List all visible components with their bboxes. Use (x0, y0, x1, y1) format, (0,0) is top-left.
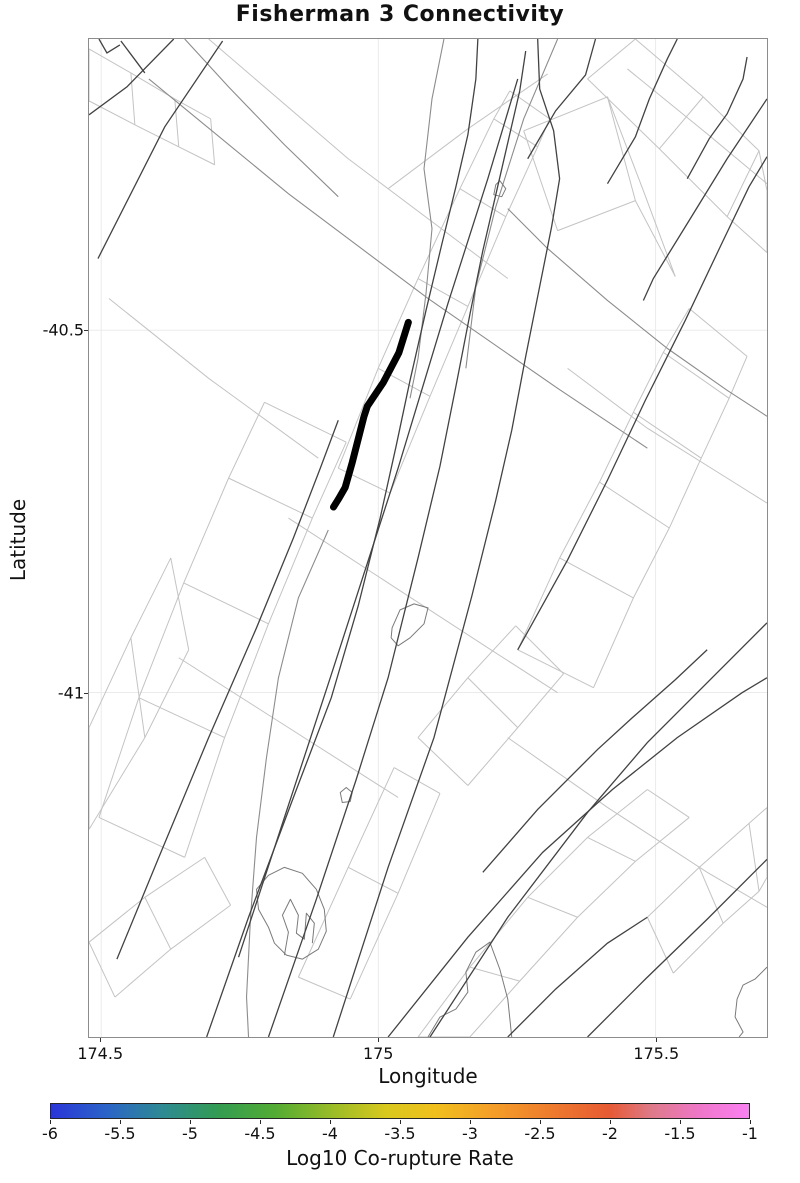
patch-ladder-rung (264, 402, 346, 442)
patch-ladder-rung (470, 967, 520, 981)
patch-ladder-rung (298, 977, 350, 999)
patch-ladder-rung (524, 131, 558, 231)
patch-ladder-rail (418, 626, 516, 738)
fault-trace-dark (98, 41, 223, 259)
x-tick-label: 175.5 (633, 1044, 679, 1063)
coastline (391, 604, 428, 646)
patch-ladder-rung (643, 191, 675, 277)
colorbar-tick-label: -1.5 (664, 1124, 695, 1143)
coastline (282, 899, 314, 955)
fault-trace-medium (149, 79, 648, 448)
patch-ladder-rung (145, 897, 171, 949)
fault-trace-dark (117, 420, 338, 959)
coastline (735, 967, 767, 1037)
patch-ladder-rail (594, 356, 748, 687)
patch-ladder-rung (518, 650, 594, 688)
patch-ladder-rung (394, 768, 440, 794)
map-plot-area (88, 38, 768, 1038)
patch-ladder-rung (418, 279, 468, 307)
fault-patch-edge (109, 298, 318, 458)
patch-ladder-rail (588, 79, 767, 253)
patch-ladder-rung (633, 412, 701, 458)
patch-ladder-rung (727, 151, 759, 217)
patch-ladder-rail (558, 201, 676, 277)
fault-trace-dark (518, 157, 767, 650)
colorbar-tick-label: -4 (322, 1124, 338, 1143)
fault-patch-edge (627, 69, 767, 184)
fault-trace-dark (687, 57, 747, 179)
colorbar-tick-label: -2 (602, 1124, 618, 1143)
patch-ladder-rung (663, 352, 729, 398)
x-tick-label: 175 (363, 1044, 394, 1063)
colorbar-tick-label: -5.5 (104, 1124, 135, 1143)
patch-ladder-rung (211, 119, 215, 165)
patch-ladder-rung (468, 678, 518, 728)
patch-ladder-rail (524, 97, 644, 191)
patch-ladder-rung (89, 942, 115, 997)
colorbar-tick-label: -4.5 (244, 1124, 275, 1143)
colorbar (50, 1103, 750, 1119)
patch-ladder-rail (390, 119, 550, 493)
patch-ladder-rail (89, 49, 211, 119)
fault-map-svg (89, 39, 767, 1037)
patch-ladder-rung (588, 39, 636, 79)
patch-ladder-rung (689, 308, 747, 356)
patch-ladder-rung (749, 823, 759, 891)
fault-patch-edge (508, 738, 767, 908)
fault-trace-dark (588, 859, 767, 1037)
patch-ladder-rung (99, 817, 185, 857)
patch-ladder-rung (205, 857, 231, 905)
fault-trace-dark (508, 917, 648, 1037)
patch-ladder-rail (673, 877, 767, 973)
fault-trace-dark (207, 39, 478, 1037)
fault-patch-edge (288, 518, 557, 693)
x-tick-label: 174.5 (77, 1044, 123, 1063)
patch-ladder-rung (599, 482, 669, 528)
patch-ladder-rail (185, 442, 347, 857)
y-axis-label: Latitude (6, 460, 30, 620)
fault-trace-medium (247, 530, 329, 1037)
coastline (428, 942, 512, 1037)
fault-trace-medium (410, 39, 444, 398)
colorbar-tick-label: -5 (182, 1124, 198, 1143)
patch-ladder-rail (115, 905, 231, 997)
colorbar-tick-label: -2.5 (524, 1124, 555, 1143)
patch-ladder-rung (560, 558, 634, 598)
y-tickmark (84, 330, 88, 331)
fault-trace-dark (643, 99, 767, 301)
patch-ladder-rung (171, 558, 189, 650)
chart-title: Fisherman 3 Connectivity (0, 2, 800, 27)
fault-trace-dark (121, 41, 145, 73)
x-axis-label: Longitude (88, 1064, 768, 1088)
patch-ladder-rung (229, 478, 313, 518)
patch-ladder-rail (89, 857, 205, 942)
patch-ladder-rail (418, 789, 647, 1037)
fault-trace-medium (508, 209, 767, 417)
colorbar-tick-label: -6 (42, 1124, 58, 1143)
patch-ladder-rail (298, 768, 394, 978)
x-tickmark (100, 1038, 101, 1042)
fault-trace-dark (333, 39, 559, 1037)
patch-ladder-rung (588, 837, 636, 861)
colorbar-label: Log10 Co-rupture Rate (0, 1146, 800, 1170)
fault-trace-dark (607, 39, 677, 184)
colorbar-tick-label: -3.5 (384, 1124, 415, 1143)
x-tickmark (378, 1038, 379, 1042)
y-tick-label: -41 (58, 683, 84, 702)
fault-trace-dark (99, 39, 120, 53)
patch-ladder-rail (468, 674, 564, 786)
patch-ladder-rail (350, 793, 440, 999)
highlighted-fault-trace (333, 322, 408, 507)
patch-ladder-rail (518, 308, 689, 649)
colorbar-tick-label: -1 (742, 1124, 758, 1143)
fault-trace-dark (430, 623, 767, 1037)
patch-ladder-rung (184, 583, 269, 624)
colorbar-tick-label: -3 (462, 1124, 478, 1143)
patch-ladder-rung (647, 789, 689, 817)
patch-ladder-rung (516, 626, 564, 674)
y-tick-label: -40.5 (43, 320, 84, 339)
patch-ladder-rung (348, 867, 398, 893)
y-tickmark (84, 693, 88, 694)
patch-ladder-rung (528, 897, 578, 917)
coastline (257, 867, 327, 959)
fault-trace-dark (268, 51, 525, 1037)
patch-ladder-rung (659, 97, 703, 149)
figure: Fisherman 3 Connectivity 174.5 175 175.5… (0, 0, 800, 1183)
x-tickmark (656, 1038, 657, 1042)
